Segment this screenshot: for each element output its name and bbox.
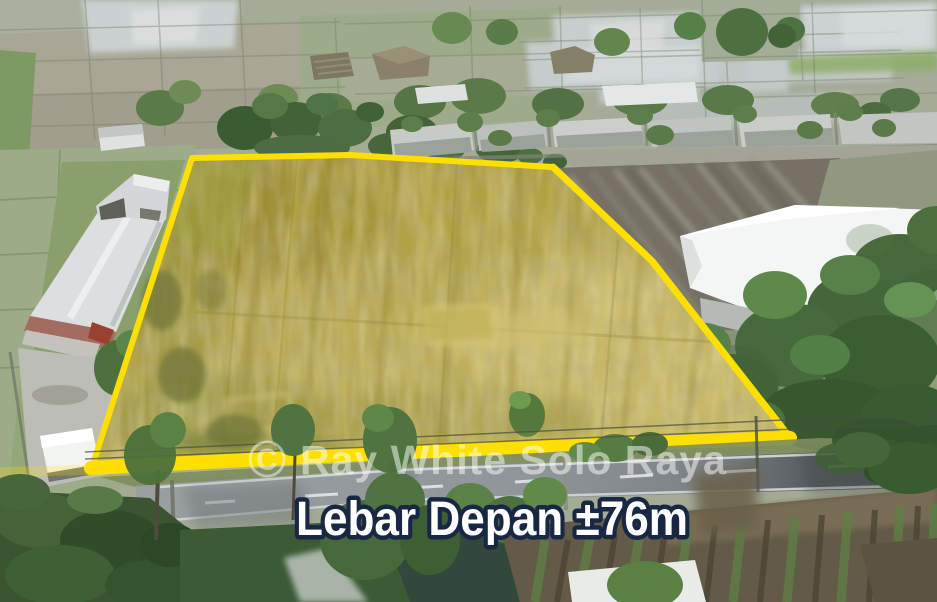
svg-text:Lebar Depan ±76m: Lebar Depan ±76m bbox=[296, 493, 688, 546]
svg-text:Ray White Solo Raya: Ray White Solo Raya bbox=[300, 437, 727, 483]
svg-text:©: © bbox=[248, 431, 286, 489]
